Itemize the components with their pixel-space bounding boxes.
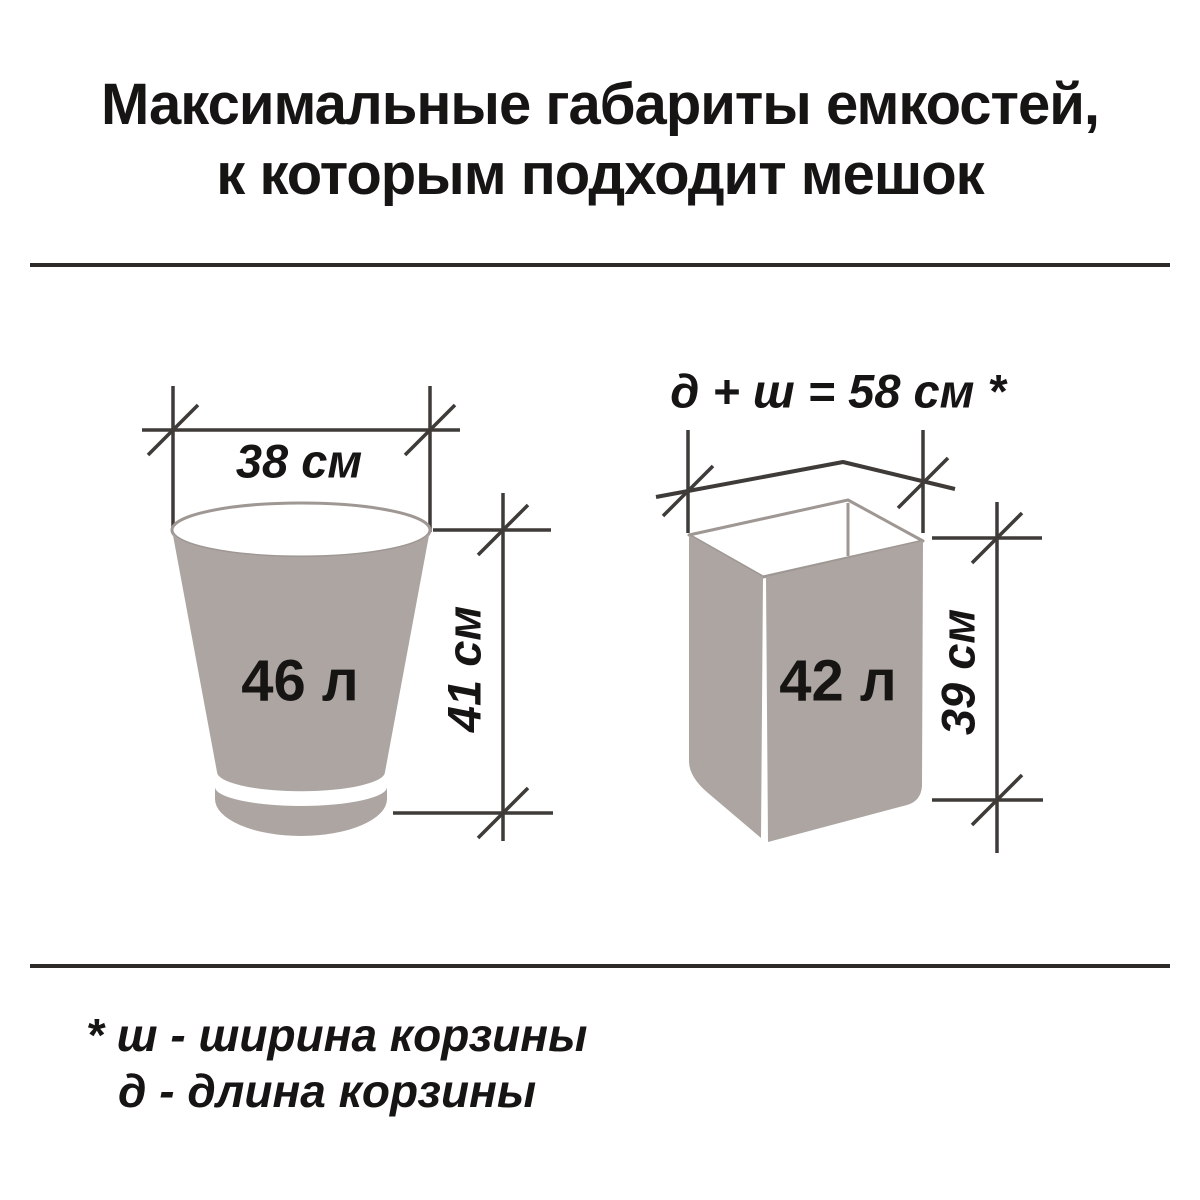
infographic-page: Максимальные габариты емкостей, к которы… [0, 0, 1200, 1200]
basket-dimension-sum-label: д + ш = 58 см * [670, 364, 1006, 419]
bottom-divider [30, 964, 1170, 968]
footnote-line-2: д - длина корзины [118, 1064, 536, 1118]
bucket-volume-label: 46 л [241, 648, 358, 715]
bucket-rim-ellipse [172, 503, 430, 557]
basket-front-left-face [689, 535, 763, 838]
footnote-line-1: * ш - ширина корзины [86, 1008, 587, 1062]
bucket-height-label: 41 см [437, 606, 492, 732]
bucket-diameter-label: 38 см [236, 434, 362, 489]
basket-volume-label: 42 л [779, 648, 896, 715]
bucket-base [215, 787, 387, 836]
basket-height-label: 39 см [931, 609, 986, 735]
